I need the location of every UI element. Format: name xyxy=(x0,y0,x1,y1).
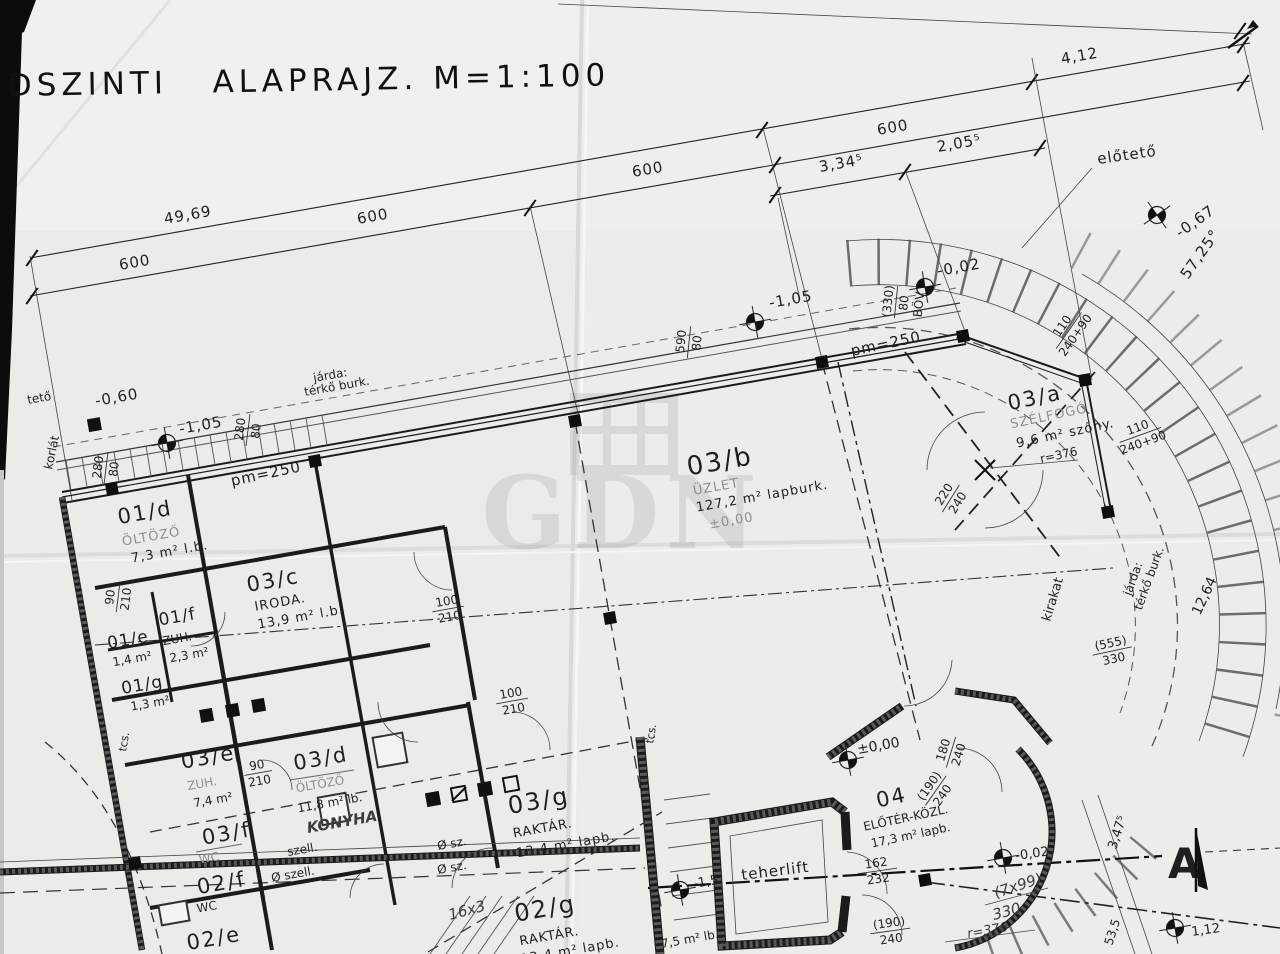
svg-text:80: 80 xyxy=(248,423,264,440)
svg-text:280: 280 xyxy=(232,417,249,441)
svg-text:590: 590 xyxy=(673,329,689,353)
svg-text:80: 80 xyxy=(106,461,122,478)
svg-text:80: 80 xyxy=(689,335,705,352)
svg-text:210: 210 xyxy=(118,587,135,611)
svg-text:280: 280 xyxy=(90,455,107,479)
scanned-floor-plan-page: { "title": "DSZINTI ALAPRAJZ. M=1:100", … xyxy=(0,0,1280,954)
floor-plan-canvas: GDN 49,69 600 600 600 600 3,34⁵ xyxy=(0,0,1280,954)
svg-text:80: 80 xyxy=(896,295,912,312)
svg-text:90: 90 xyxy=(102,589,118,606)
svg-text:90: 90 xyxy=(248,757,265,773)
